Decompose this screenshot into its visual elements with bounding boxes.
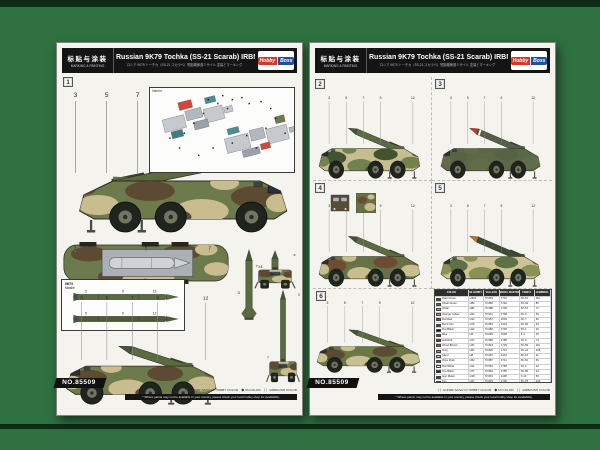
svg-text:7: 7 — [484, 96, 486, 100]
page-header: 标贴与涂装 MARKING & PAINTING Russian 9K79 To… — [315, 48, 550, 73]
svg-text:12: 12 — [411, 204, 415, 208]
logo-boss: Boss — [531, 57, 547, 65]
svg-text:12: 12 — [411, 96, 415, 100]
camouflage-detail-inset — [356, 193, 376, 213]
svg-text:5: 5 — [467, 204, 469, 208]
svg-text:5: 5 — [145, 245, 148, 251]
marking-label-en: MARKING & PAINTING — [315, 64, 366, 68]
top-border-band — [0, 0, 600, 7]
vehicle-scheme-3: 357912 — [436, 91, 550, 179]
svg-text:9: 9 — [380, 204, 382, 208]
interior-exploded-view — [150, 88, 294, 172]
vehicle-scheme-6: 357912 — [312, 297, 430, 373]
svg-text:3: 3 — [80, 295, 83, 301]
svg-text:7: 7 — [267, 356, 269, 360]
availability-note: * Where paints may not be available in y… — [125, 394, 297, 400]
svg-text:12: 12 — [531, 204, 535, 208]
title-block: Russian 9K79 Tochka (SS-21 Scarab) IRBM … — [114, 48, 255, 73]
svg-text:3: 3 — [298, 293, 300, 297]
bottom-border-band — [0, 424, 600, 429]
svg-text:9: 9 — [156, 295, 159, 301]
svg-text:14: 14 — [258, 265, 263, 269]
kit-subtitle: ロシア 9K79 トーチカ（SS-21 スカラベ）短距離弾道ミサイル 塗装とマー… — [369, 62, 506, 67]
kit-title: Russian 9K79 Tochka (SS-21 Scarab) IRBM — [369, 54, 506, 61]
vehicle-scheme-2: 357912 — [314, 91, 430, 179]
scheme-badge-5: 5 — [435, 183, 445, 193]
svg-text:5: 5 — [344, 301, 346, 305]
page-header: 标贴与涂装 MARKING & PAINTING Russian 9K79 To… — [62, 48, 297, 73]
svg-text:5: 5 — [105, 92, 109, 99]
kit-subtitle: ロシア 9K79 トーチカ（SS-21 スカラベ）短距離弾道ミサイル 塗装とマー… — [116, 62, 253, 67]
scheme-badge-3: 3 — [435, 79, 445, 89]
marking-label-en: MARKING & PAINTING — [62, 64, 113, 68]
logo-boss: Boss — [278, 57, 294, 65]
hobbyboss-logo: HobbyBoss — [511, 51, 547, 70]
interior-inset-box: Interior — [149, 87, 295, 173]
svg-text:3: 3 — [328, 96, 330, 100]
paint-brand-legend: （ ）GUNZE SANGYO HOBBY COLOR ◆ Mr.COLOR （… — [436, 387, 550, 392]
svg-text:3: 3 — [450, 204, 452, 208]
paint-brand-legend: （ ）GUNZE SANGYO HOBBY COLOR ◆ Mr.COLOR （… — [183, 387, 297, 392]
title-block: Russian 9K79 Tochka (SS-21 Scarab) IRBM … — [367, 48, 508, 73]
cab-detail-inset — [330, 193, 350, 213]
svg-text:12: 12 — [531, 96, 535, 100]
svg-text:9: 9 — [501, 96, 503, 100]
svg-text:7: 7 — [131, 295, 134, 301]
vehicle-scheme-5: 357912 — [436, 199, 550, 287]
vehicle-rear-view-erected: 37 — [265, 281, 301, 387]
scheme-badge-4: 4 — [315, 183, 325, 193]
logo-hobby: Hobby — [258, 57, 278, 65]
svg-text:5: 5 — [106, 295, 109, 301]
svg-text:3: 3 — [238, 291, 240, 295]
scheme-badge-1: 1 — [63, 77, 73, 87]
paint-color-table: COLORMr.HOBBYVALLEJOMODEL MASTERTAMIYAHU… — [434, 289, 552, 383]
svg-text:12: 12 — [203, 295, 209, 301]
svg-text:5: 5 — [467, 96, 469, 100]
svg-text:3: 3 — [450, 96, 452, 100]
svg-text:12: 12 — [411, 301, 415, 305]
scheme-badge-6: 6 — [316, 291, 326, 301]
svg-text:9: 9 — [379, 301, 381, 305]
kit-title: Russian 9K79 Tochka (SS-21 Scarab) IRBM — [116, 54, 253, 61]
marking-painting-block: 标贴与涂装 MARKING & PAINTING — [62, 48, 114, 73]
svg-text:9: 9 — [501, 204, 503, 208]
scheme-badge-2: 2 — [315, 79, 325, 89]
svg-text:3: 3 — [293, 254, 295, 257]
kit-number-box: NO.85509 — [54, 378, 106, 388]
instruction-sheet-right-page: 标贴与涂装 MARKING & PAINTING Russian 9K79 To… — [309, 42, 556, 416]
svg-text:5: 5 — [345, 96, 347, 100]
marking-label-cn: 标贴与涂装 — [315, 53, 366, 63]
missile-upright-view: 143 — [235, 247, 263, 325]
marking-painting-block: 标贴与涂装 MARKING & PAINTING — [315, 48, 367, 73]
svg-text:7: 7 — [484, 204, 486, 208]
marking-label-cn: 标贴与涂装 — [62, 53, 113, 63]
svg-text:7: 7 — [208, 245, 211, 251]
svg-text:7: 7 — [361, 301, 363, 305]
logo-hobby: Hobby — [511, 57, 531, 65]
inset-label: Interior — [152, 89, 162, 93]
svg-text:7: 7 — [136, 92, 140, 99]
kit-number: NO.85509 — [315, 379, 349, 386]
hobbyboss-logo: HobbyBoss — [258, 51, 294, 70]
svg-text:3: 3 — [326, 301, 328, 305]
svg-text:3: 3 — [74, 92, 78, 99]
svg-text:3: 3 — [74, 245, 77, 251]
svg-text:9: 9 — [380, 96, 382, 100]
availability-note: * Where paints may not be available in y… — [378, 394, 550, 400]
kit-number-box: NO.85509 — [307, 378, 359, 388]
instruction-sheet-left-page: 标贴与涂装 MARKING & PAINTING Russian 9K79 To… — [56, 42, 303, 416]
svg-text:7: 7 — [363, 96, 365, 100]
kit-number: NO.85509 — [62, 379, 96, 386]
